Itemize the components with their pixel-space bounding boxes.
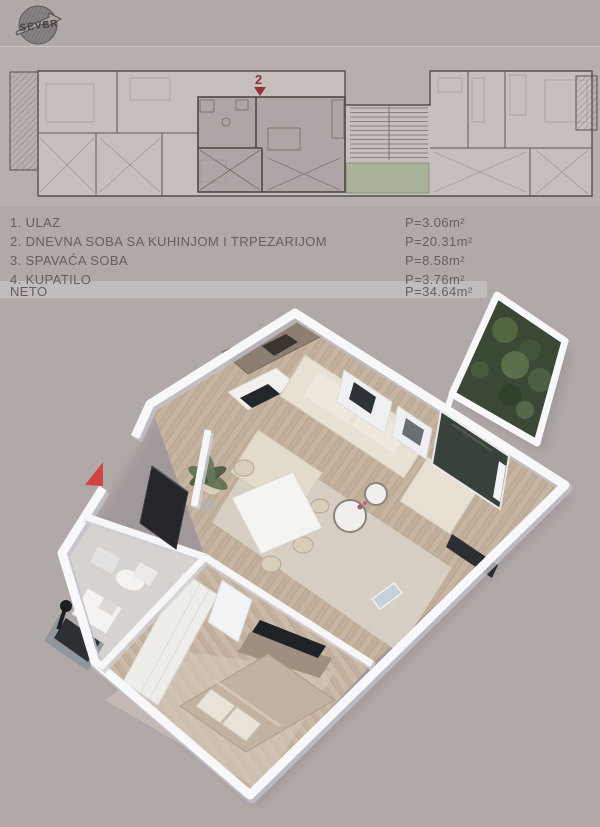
brochure-page: SEVER <box>0 0 600 827</box>
room-area: P=3.06m² <box>405 213 465 232</box>
unit-marker-number: 2 <box>255 72 262 87</box>
flowers <box>358 505 363 510</box>
entrance-arrow-icon <box>85 462 103 486</box>
logo-mark: SEVER <box>16 6 61 44</box>
legend-row: 2. DNEVNA SOBA SA KUHINJOM I TRPEZARIJOM… <box>0 232 600 251</box>
sever-logo: SEVER <box>14 3 68 49</box>
green-court <box>346 163 429 193</box>
room-label: 2. DNEVNA SOBA SA KUHINJOM I TRPEZARIJOM <box>10 232 327 251</box>
building-floorplan-strip: 2 <box>0 58 600 206</box>
highlighted-unit <box>198 97 345 192</box>
legend-row: 1. ULAZ P=3.06m² <box>0 213 600 232</box>
room-area: P=20.31m² <box>405 232 473 251</box>
room-label: 1. ULAZ <box>10 213 60 232</box>
apartment-3d-render <box>0 255 600 827</box>
left-balcony-hatch <box>10 72 38 170</box>
